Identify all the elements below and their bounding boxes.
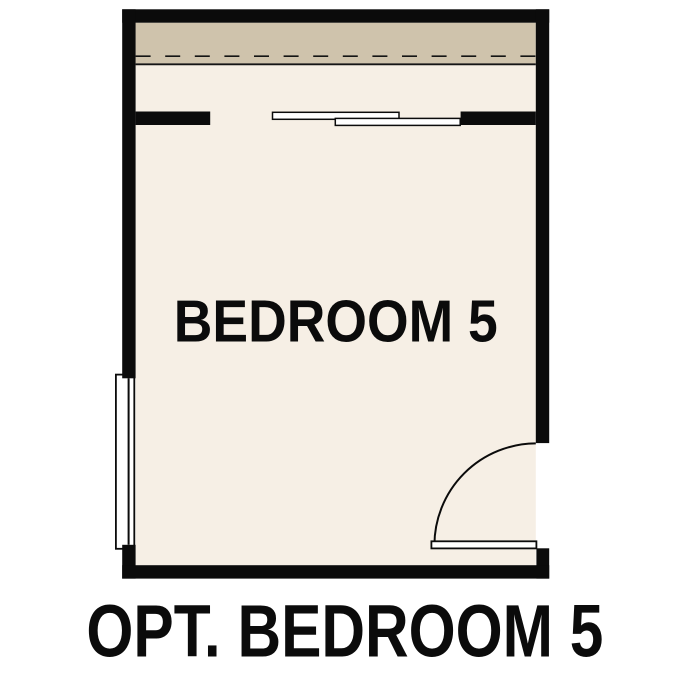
svg-text:BEDROOM 5: BEDROOM 5	[174, 287, 498, 354]
svg-text:OPT. BEDROOM 5: OPT. BEDROOM 5	[86, 590, 603, 673]
